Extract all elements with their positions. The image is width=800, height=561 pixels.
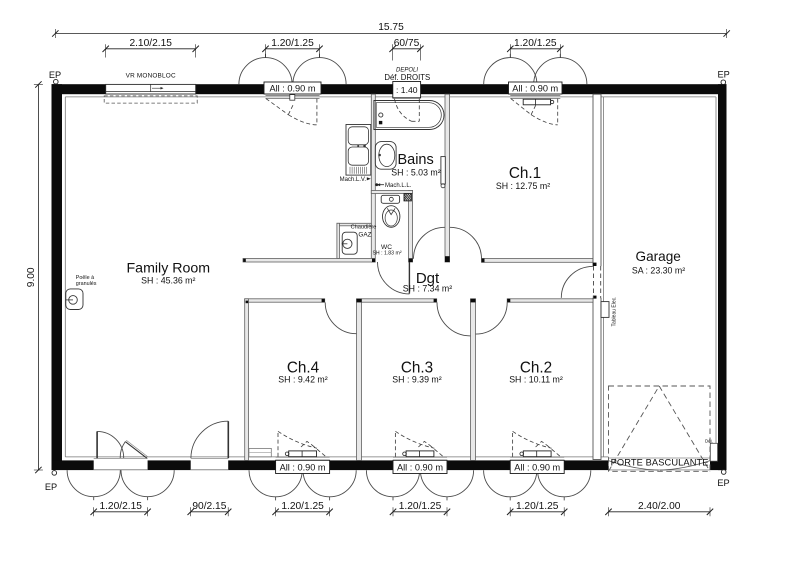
svg-text:1.20/2.15: 1.20/2.15 [99, 501, 142, 512]
svg-text:1.20/1.25: 1.20/1.25 [516, 501, 559, 512]
svg-text:All : 0.90 m: All : 0.90 m [270, 83, 316, 93]
svg-text:: 1.40: : 1.40 [396, 85, 418, 95]
svg-text:SH : 9.42 m²: SH : 9.42 m² [278, 375, 327, 385]
svg-text:SH : 12.75 m²: SH : 12.75 m² [496, 181, 550, 191]
svg-text:EP: EP [717, 70, 729, 80]
svg-text:Ch.1: Ch.1 [509, 165, 541, 182]
svg-text:1.20/1.25: 1.20/1.25 [399, 501, 442, 512]
svg-text:Garage: Garage [636, 249, 681, 264]
svg-text:Mach.L.V.: Mach.L.V. [340, 177, 367, 183]
svg-text:All : 0.90 m: All : 0.90 m [397, 463, 443, 473]
svg-text:granulés: granulés [76, 281, 97, 287]
svg-text:SH : 45.36 m²: SH : 45.36 m² [141, 276, 195, 286]
svg-text:1.20/1.25: 1.20/1.25 [281, 501, 324, 512]
svg-text:2.40/2.00: 2.40/2.00 [638, 501, 681, 512]
svg-text:1.20/1.25: 1.20/1.25 [514, 38, 557, 49]
svg-text:EP: EP [717, 478, 729, 488]
svg-text:Chaudière: Chaudière [351, 225, 377, 231]
svg-text:VR MONOBLOC: VR MONOBLOC [126, 73, 176, 80]
svg-text:EP: EP [45, 482, 57, 492]
svg-text:All : 0.90 m: All : 0.90 m [280, 463, 326, 473]
svg-text:GAZ: GAZ [358, 232, 371, 239]
svg-text:SH : 7.34 m²: SH : 7.34 m² [403, 283, 452, 293]
svg-text:EP: EP [49, 70, 61, 80]
svg-text:15.75: 15.75 [378, 22, 404, 33]
svg-text:Family Room: Family Room [127, 261, 211, 277]
svg-text:9.00: 9.00 [26, 267, 37, 287]
svg-text:Déf. DROITS: Déf. DROITS [384, 73, 430, 82]
svg-text:All : 0.90 m: All : 0.90 m [512, 83, 558, 93]
svg-text:90/2.15: 90/2.15 [192, 501, 226, 512]
svg-text:Mach.L.L.: Mach.L.L. [385, 183, 412, 189]
svg-text:All : 0.90 m: All : 0.90 m [514, 463, 560, 473]
svg-text:1.20/1.25: 1.20/1.25 [271, 38, 314, 49]
svg-text:SA : 23.30 m²: SA : 23.30 m² [632, 265, 685, 275]
svg-text:Tableau Elec.: Tableau Elec. [612, 296, 618, 326]
svg-text:SH : 10.11 m²: SH : 10.11 m² [509, 375, 563, 385]
svg-text:2.10/2.15: 2.10/2.15 [129, 38, 172, 49]
svg-text:Déj.: Déj. [705, 439, 713, 444]
svg-text:60/75: 60/75 [394, 38, 420, 49]
svg-text:SH : 5.03 m²: SH : 5.03 m² [391, 168, 440, 178]
svg-text:PORTE BASCULANTE: PORTE BASCULANTE [611, 457, 709, 467]
svg-text:SH : 1.83 m²: SH : 1.83 m² [372, 251, 401, 257]
svg-text:SH : 9.39 m²: SH : 9.39 m² [392, 375, 441, 385]
svg-text:Bains: Bains [397, 152, 433, 168]
